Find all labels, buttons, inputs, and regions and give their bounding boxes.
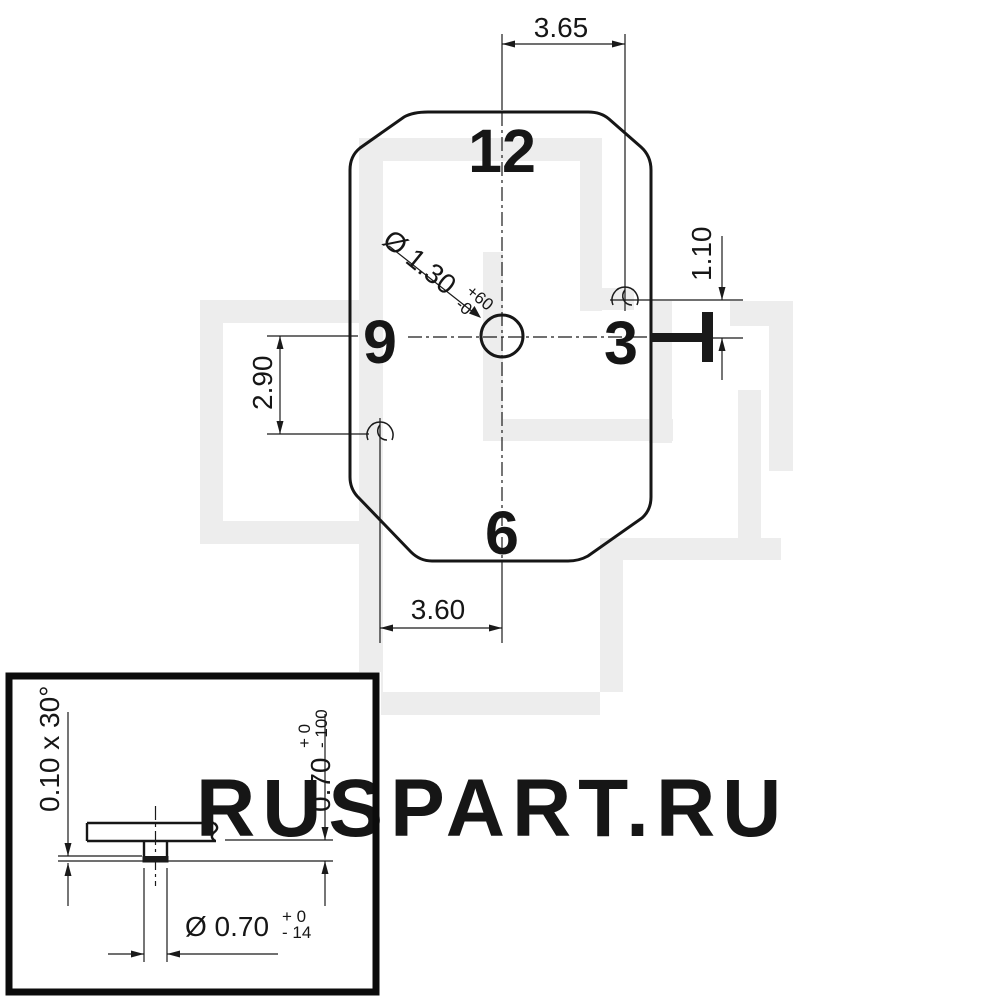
dial-number-6: 6 (485, 499, 519, 567)
hole-dim-label: Ø 1.30 (377, 224, 462, 301)
stem-height-label: 0.70 (305, 758, 336, 813)
dim-top-3-65: 3.65 (502, 12, 625, 48)
dial-number-9: 9 (363, 308, 397, 376)
dim-bottom-3-60: 3.60 (380, 594, 502, 632)
stem-height-tol-minus: - 100 (312, 709, 331, 748)
dim-right-label: 1.10 (686, 227, 717, 282)
dim-top-label: 3.65 (534, 12, 589, 43)
drawing-canvas: RUSPART.RU 3.65 1.10 (0, 0, 1000, 1000)
dim-bottom-label: 3.60 (411, 594, 466, 625)
dim-left-2-90: 2.90 (247, 336, 284, 434)
dial-number-12: 12 (468, 117, 536, 185)
chamfer-label: 0.10 x 30° (34, 686, 65, 812)
stem-diameter-label: Ø 0.70 (185, 911, 269, 942)
dial-number-3: 3 (604, 309, 638, 377)
dim-left-label: 2.90 (247, 356, 278, 411)
drawing-page: RUSPART.RU 3.65 1.10 (0, 0, 1000, 1000)
stem-diameter-tol-minus: - 14 (282, 923, 311, 942)
